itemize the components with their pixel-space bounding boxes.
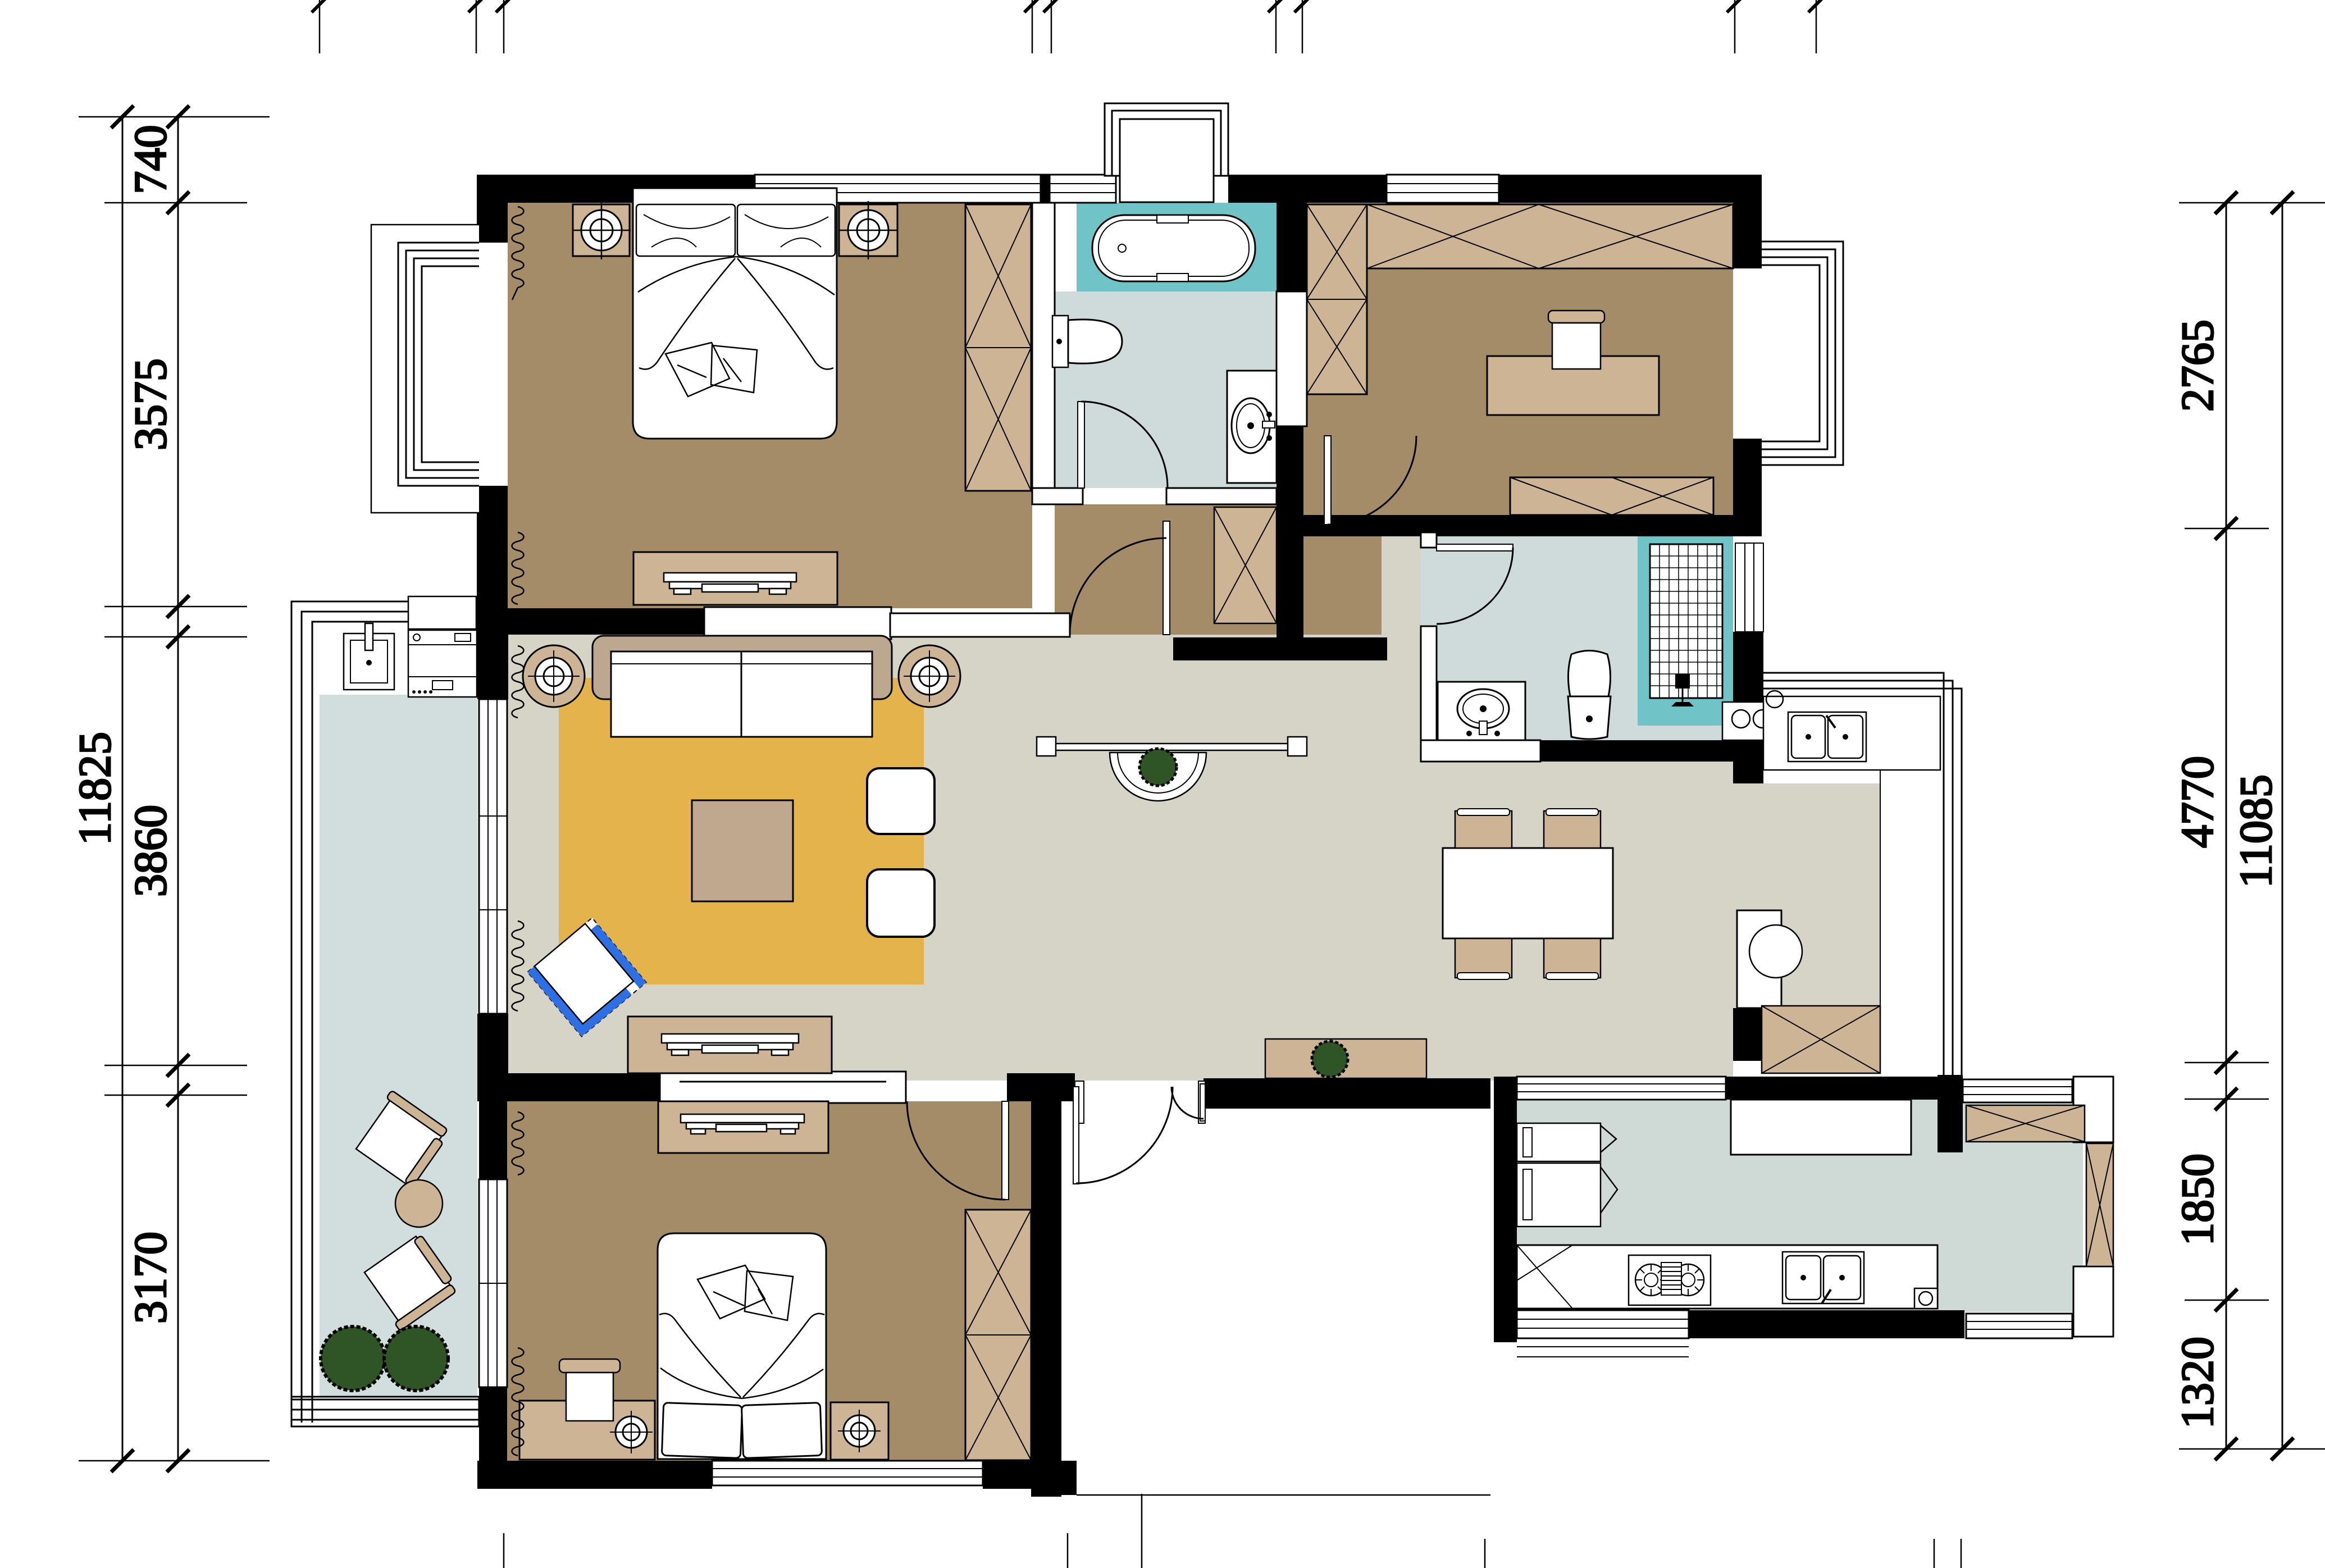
svg-text:3170: 3170 <box>125 1232 176 1324</box>
svg-text:3860: 3860 <box>125 805 176 897</box>
svg-text:11825: 11825 <box>69 732 120 845</box>
svg-text:1320: 1320 <box>2172 1337 2223 1429</box>
svg-text:4770: 4770 <box>2172 756 2223 848</box>
svg-text:2765: 2765 <box>2172 320 2223 412</box>
svg-text:11085: 11085 <box>2230 774 2281 888</box>
svg-text:3575: 3575 <box>125 358 176 450</box>
svg-text:1850: 1850 <box>2172 1154 2223 1246</box>
svg-text:740: 740 <box>125 125 176 194</box>
